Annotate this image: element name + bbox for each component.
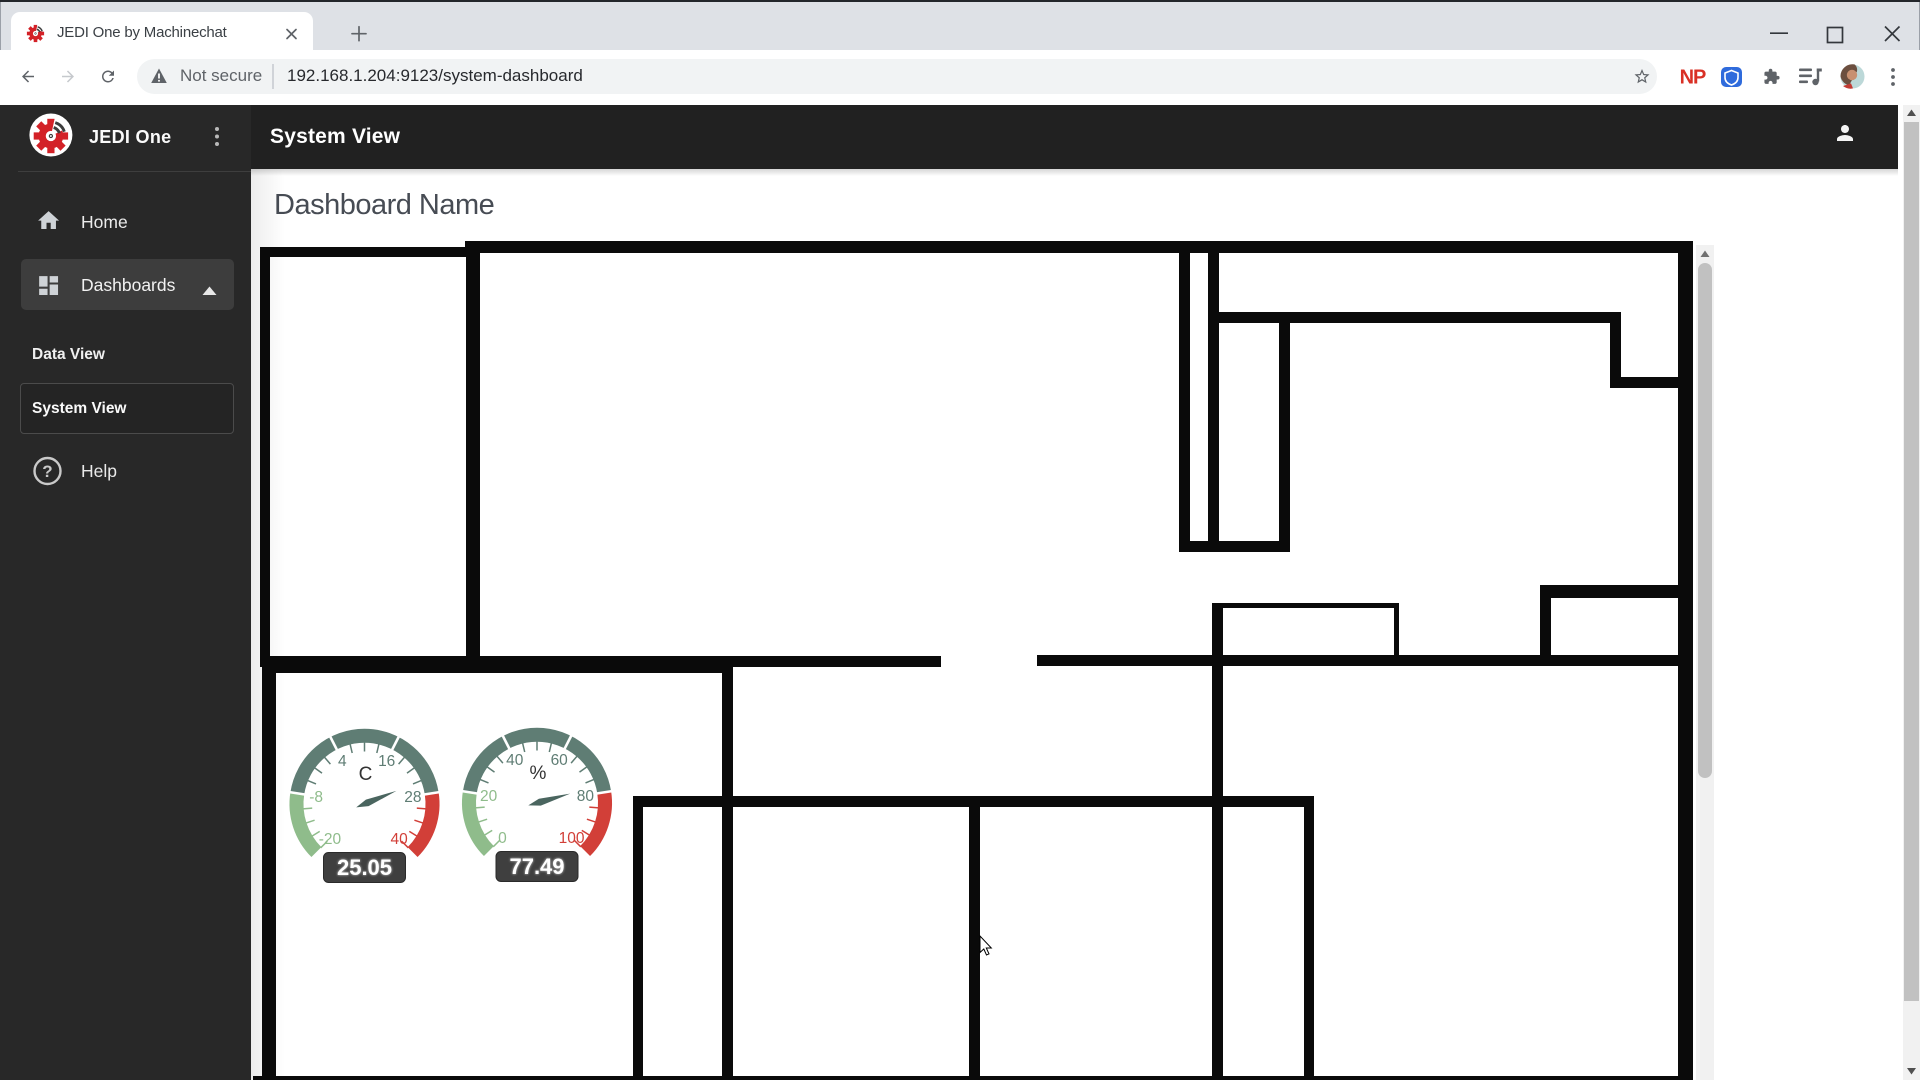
svg-text:?: ? [42,462,52,481]
svg-text:%: % [530,763,547,784]
svg-text:40: 40 [506,752,524,769]
svg-text:20: 20 [480,788,498,805]
svg-text:77.49: 77.49 [509,854,564,879]
svg-text:-8: -8 [309,789,323,806]
svg-text:25.05: 25.05 [337,855,392,880]
svg-text:0: 0 [498,830,507,847]
svg-text:40: 40 [390,831,408,848]
svg-text:4: 4 [338,753,347,770]
svg-text:80: 80 [577,788,595,805]
svg-text:28: 28 [404,789,421,806]
svg-text:100: 100 [559,830,585,847]
svg-text:NP: NP [1680,67,1706,89]
svg-text:16: 16 [378,753,395,770]
svg-text:60: 60 [551,752,569,769]
svg-text:C: C [359,764,373,785]
svg-text:-20: -20 [319,831,342,848]
